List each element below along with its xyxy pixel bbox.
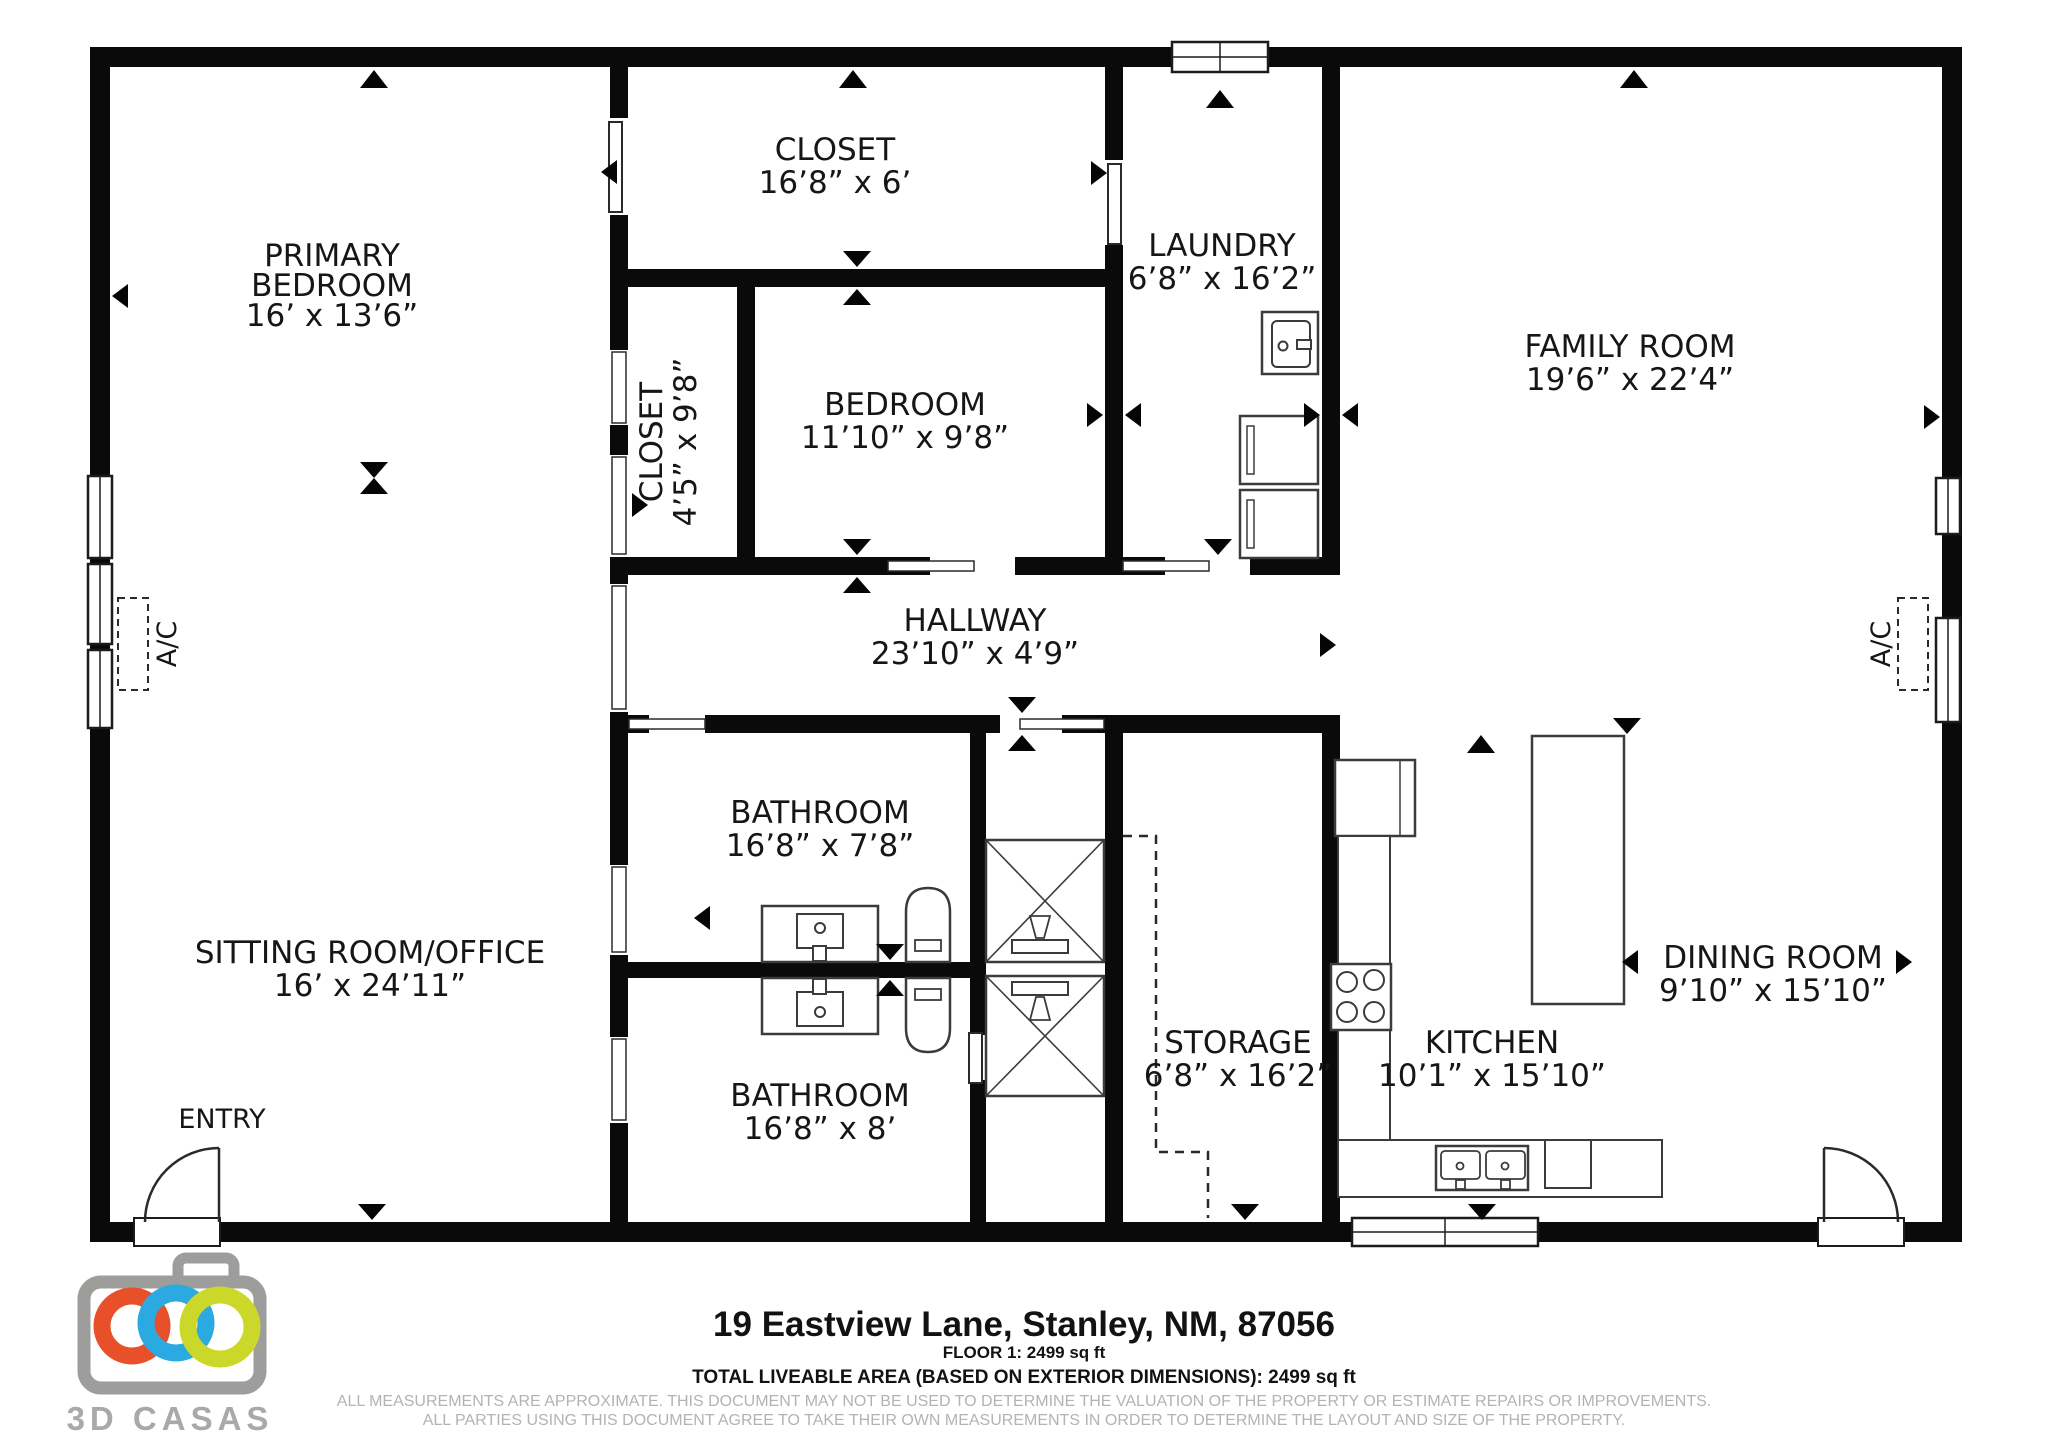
- room-dims-hallway: 23’10” x 4’9”: [871, 636, 1079, 672]
- room-dims-bedroom: 11’10” x 9’8”: [801, 420, 1009, 456]
- door-casing: [612, 352, 626, 423]
- shower-icon: [986, 976, 1104, 1096]
- washer-icon: [1240, 416, 1318, 484]
- door-casing: [612, 586, 626, 709]
- room-dims-kitchen: 10’1” x 15’10”: [1378, 1058, 1606, 1094]
- bath-divider-wall: [628, 962, 986, 978]
- toilet-icon: [906, 888, 950, 962]
- room-label-laundry: LAUNDRY: [1148, 228, 1295, 264]
- room-dims-sitting-room: 16’ x 24’11”: [274, 968, 466, 1004]
- room-label-family-room: FAMILY ROOM: [1524, 329, 1735, 365]
- property-address: 19 Eastview Lane, Stanley, NM, 87056: [713, 1305, 1335, 1344]
- arrow-marker: [1896, 950, 1912, 974]
- room-label-closet-small: CLOSET: [634, 381, 670, 502]
- closet-divider-wall: [737, 287, 755, 557]
- ac-unit-icon: [118, 598, 148, 690]
- door-leaf-icon: [1108, 164, 1121, 244]
- bowtie-marker: [843, 289, 871, 305]
- disclaimer-line-1: ALL MEASUREMENTS ARE APPROXIMATE. THIS D…: [337, 1393, 1711, 1410]
- storage-west-wall: [1105, 733, 1123, 1222]
- arrow-marker: [358, 1204, 386, 1220]
- room-dims-primary-bedroom: 16’ x 13’6”: [246, 298, 418, 334]
- bowtie-marker: [876, 980, 904, 996]
- arrow-marker: [1091, 161, 1107, 185]
- kitchen-island: [1532, 736, 1624, 1004]
- arrow-marker: [1320, 633, 1336, 657]
- arrow-marker: [1613, 718, 1641, 734]
- room-dims-laundry: 6’8” x 16’2”: [1128, 261, 1317, 297]
- total-area-line: TOTAL LIVEABLE AREA (BASED ON EXTERIOR D…: [692, 1367, 1356, 1388]
- vanity-sink-icon: [762, 978, 878, 1034]
- toilet-icon: [906, 978, 950, 1052]
- brand-name: 3D CASAS: [67, 1400, 274, 1437]
- bowtie-marker: [1087, 403, 1103, 427]
- room-dims-storage: 6’8” x 16’2”: [1144, 1058, 1333, 1094]
- exterior-wall-bottom: [90, 1222, 1962, 1242]
- room-label-dining-room: DINING ROOM: [1663, 940, 1883, 976]
- back-door-icon: [1818, 1148, 1904, 1246]
- window-icon: [1172, 42, 1268, 72]
- bowtie-marker: [843, 577, 871, 593]
- room-label-bathroom-bottom: BATHROOM: [730, 1078, 909, 1114]
- arrow-marker: [360, 70, 388, 88]
- floor-plan-page: PRIMARY BEDROOM 16’ x 13’6” CLOSET 16’8”…: [0, 0, 2048, 1448]
- stove-icon: [1331, 964, 1391, 1030]
- laundry-family-wall: [1322, 67, 1340, 575]
- window-icon: [1352, 1218, 1538, 1246]
- bowtie-marker: [876, 944, 904, 960]
- room-label-bedroom: BEDROOM: [824, 387, 986, 423]
- camera-logo-icon: [84, 1258, 260, 1388]
- room-dims-dining-room: 9’10” x 15’10”: [1659, 973, 1887, 1009]
- room-label-bathroom-top: BATHROOM: [730, 795, 909, 831]
- arrow-marker: [839, 70, 867, 88]
- room-label-hallway: HALLWAY: [904, 603, 1047, 639]
- entry-door-icon: [134, 1148, 220, 1246]
- bowtie-marker: [1342, 403, 1358, 427]
- room-label-sitting-room: SITTING ROOM/OFFICE: [195, 935, 545, 971]
- bowtie-marker: [843, 539, 871, 555]
- floor-plan-canvas: PRIMARY BEDROOM 16’ x 13’6” CLOSET 16’8”…: [0, 0, 2048, 1448]
- arrow-marker: [1924, 405, 1940, 429]
- bowtie-marker: [843, 251, 871, 267]
- room-dims-bathroom-bottom: 16’8” x 8’: [744, 1111, 897, 1147]
- disclaimer-line-2: ALL PARTIES USING THIS DOCUMENT AGREE TO…: [423, 1412, 1626, 1429]
- shower-icon: [986, 840, 1104, 962]
- closet-bottom-wall: [610, 269, 1115, 287]
- bowtie-marker: [360, 478, 388, 494]
- ac-label-left: A/C: [152, 621, 183, 667]
- window-icon: [88, 476, 112, 728]
- ac-unit-icon: [1898, 598, 1928, 690]
- hallway-bottom-wall: [610, 715, 1338, 733]
- arrow-marker: [112, 284, 128, 308]
- dryer-icon: [1240, 490, 1318, 558]
- room-dims-family-room: 19’6” x 22’4”: [1526, 362, 1734, 398]
- door-casing: [612, 1039, 626, 1120]
- brand-logo: 3D CASAS: [67, 1258, 274, 1437]
- footer: 19 Eastview Lane, Stanley, NM, 87056 FLO…: [337, 1305, 1711, 1429]
- door-leaf-icon: [969, 1033, 982, 1083]
- laundry-sink-icon: [1262, 312, 1318, 374]
- vanity-sink-icon: [762, 906, 878, 962]
- arrow-marker: [1204, 539, 1232, 555]
- ac-label-right: A/C: [1866, 621, 1897, 667]
- room-label-entry: ENTRY: [178, 1104, 266, 1135]
- bowtie-marker: [360, 462, 388, 478]
- room-dims-closet-small: 4’5” x 9’8”: [668, 358, 704, 527]
- exterior-wall-top: [90, 47, 1962, 67]
- door-casing: [612, 867, 626, 952]
- bowtie-marker: [1125, 403, 1141, 427]
- room-dims-closet-top: 16’8” x 6’: [759, 165, 912, 201]
- arrow-marker: [1206, 90, 1234, 108]
- room-label-kitchen: KITCHEN: [1425, 1025, 1559, 1061]
- room-label-closet-top: CLOSET: [775, 132, 896, 168]
- kitchen-sink-icon: [1436, 1146, 1528, 1190]
- floor-area-line: FLOOR 1: 2499 sq ft: [943, 1343, 1106, 1362]
- arrow-marker: [1467, 735, 1495, 753]
- arrow-marker: [694, 906, 710, 930]
- bowtie-marker: [1008, 735, 1036, 751]
- door-casing: [612, 457, 626, 554]
- arrow-marker: [1231, 1204, 1259, 1220]
- room-label-storage: STORAGE: [1164, 1025, 1312, 1061]
- room-dims-bathroom-top: 16’8” x 7’8”: [726, 828, 915, 864]
- bowtie-marker: [1008, 697, 1036, 713]
- arrow-marker: [1620, 70, 1648, 88]
- dishwasher-icon: [1545, 1140, 1591, 1188]
- fridge-icon: [1335, 760, 1415, 836]
